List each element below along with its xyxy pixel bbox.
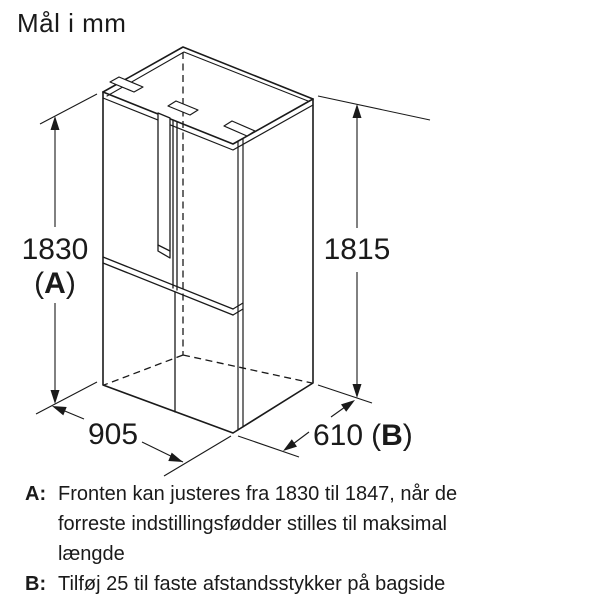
- door-divider-top: [103, 257, 233, 309]
- note-a-text: Fronten kan justeres fra 1830 til 1847, …: [58, 479, 585, 569]
- footnotes: A: Fronten kan justeres fra 1830 til 184…: [25, 479, 585, 599]
- door-handle: [158, 113, 170, 258]
- top-face-rim: [107, 52, 308, 101]
- top-face-front-edges: [103, 92, 313, 144]
- dim-side-height: 1815: [318, 96, 430, 403]
- dim-line-depth-lower: [293, 432, 309, 444]
- note-a: A: Fronten kan justeres fra 1830 til 184…: [25, 479, 585, 569]
- side-door-edge: [233, 139, 243, 430]
- hinge-right-icon: [224, 121, 255, 136]
- dim-ext-bottom-right: [318, 385, 372, 403]
- arrow-down-right-icon: [168, 453, 183, 462]
- arrow-down-icon: [353, 384, 362, 398]
- door-top-edge: [103, 98, 313, 150]
- dim-width: 905: [52, 406, 231, 476]
- note-a-line-1: Fronten kan justeres fra 1830 til 1847, …: [58, 479, 585, 509]
- dim-ext-top-right: [318, 96, 430, 120]
- arrow-up-icon: [353, 104, 362, 118]
- front-doors: [103, 113, 233, 412]
- note-b-label: B:: [25, 569, 58, 599]
- hidden-bottom-left-edge: [104, 355, 183, 385]
- dim-depth: 610(B): [238, 400, 413, 457]
- note-b-text: Tilføj 25 til faste afstandsstykker på b…: [58, 569, 585, 599]
- arrow-up-left-icon: [52, 406, 67, 415]
- dim-label-front-height: 1830: [22, 233, 89, 266]
- note-a-label: A:: [25, 479, 58, 509]
- dim-label-width: 905: [88, 418, 138, 451]
- dim-label-depth: 610(B): [313, 419, 413, 452]
- dim-line-depth-upper: [331, 407, 345, 417]
- dim-label-side-height: 1815: [324, 233, 391, 266]
- hidden-edges: [104, 52, 312, 385]
- hidden-bottom-right-edge: [183, 355, 312, 383]
- note-b-line-1: Tilføj 25 til faste afstandsstykker på b…: [58, 569, 585, 599]
- note-a-line-3: længde: [58, 539, 585, 569]
- cabinet-outline: [103, 92, 313, 433]
- note-a-line-2: forreste indstillingsfødder stilles til …: [58, 509, 585, 539]
- arrow-down-left-icon: [283, 439, 297, 451]
- door-divider-bottom: [103, 263, 233, 315]
- note-b: B: Tilføj 25 til faste afstandsstykker p…: [25, 569, 585, 599]
- dimension-diagram-page: Mål i mm: [0, 0, 600, 600]
- arrow-up-right-icon: [341, 400, 355, 412]
- dim-ext-top-left: [40, 94, 97, 124]
- refrigerator-cabinet: [103, 47, 313, 433]
- dim-letter-front-height: (A): [34, 267, 76, 300]
- dim-ext-bottom-left: [36, 382, 97, 414]
- dim-front-height: 1830 (A): [22, 94, 97, 414]
